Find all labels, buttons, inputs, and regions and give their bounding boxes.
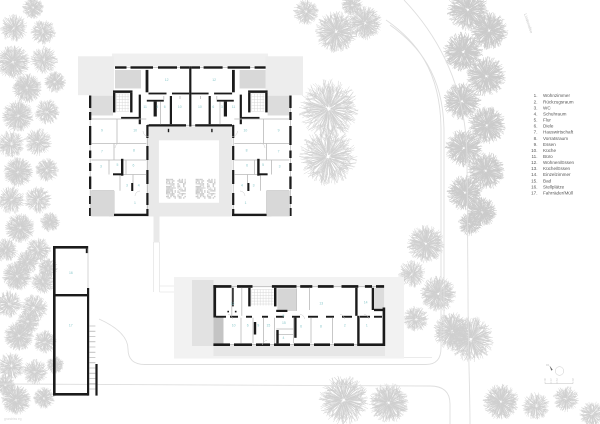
svg-text:11.: 11.: [531, 154, 537, 159]
svg-text:1: 1: [550, 377, 552, 381]
svg-text:Wohnen/Essen: Wohnen/Essen: [543, 160, 575, 165]
svg-text:10: 10: [178, 105, 182, 109]
svg-text:4: 4: [283, 336, 285, 340]
svg-text:5: 5: [283, 314, 285, 318]
svg-text:1: 1: [245, 201, 247, 205]
svg-text:Bad: Bad: [543, 178, 552, 183]
svg-text:Essen: Essen: [543, 142, 556, 147]
svg-text:12: 12: [231, 302, 235, 306]
svg-text:Fahrräder/Müll: Fahrräder/Müll: [543, 190, 573, 195]
svg-text:9: 9: [257, 324, 259, 328]
svg-text:17.: 17.: [531, 190, 537, 195]
svg-text:3: 3: [126, 183, 128, 187]
svg-text:Diele: Diele: [543, 124, 554, 129]
svg-text:3: 3: [221, 105, 223, 109]
svg-text:2.: 2.: [534, 99, 538, 104]
svg-text:Küche: Küche: [543, 148, 556, 153]
svg-text:17: 17: [69, 323, 73, 327]
svg-text:Stellplätze: Stellplätze: [543, 184, 565, 189]
svg-text:Rückzugsraum: Rückzugsraum: [543, 99, 574, 104]
svg-text:10.: 10.: [531, 148, 537, 153]
svg-text:N: N: [547, 363, 549, 367]
svg-text:0: 0: [544, 377, 546, 381]
svg-text:11: 11: [143, 105, 147, 109]
svg-text:10: 10: [244, 129, 248, 133]
svg-text:6: 6: [300, 324, 302, 328]
svg-text:Flur: Flur: [543, 118, 551, 123]
svg-text:13: 13: [319, 301, 323, 305]
svg-text:1: 1: [366, 324, 368, 328]
svg-text:Schuhraum: Schuhraum: [543, 111, 567, 116]
svg-text:1: 1: [134, 201, 136, 205]
svg-text:Hauswirtschaft: Hauswirtschaft: [543, 130, 574, 135]
svg-text:16.: 16.: [531, 184, 537, 189]
svg-text:12.: 12.: [531, 160, 537, 165]
svg-text:9: 9: [278, 129, 280, 133]
svg-text:16: 16: [69, 271, 73, 275]
svg-text:8.: 8.: [534, 136, 538, 141]
svg-text:15: 15: [267, 324, 271, 328]
svg-text:Vorratsraum: Vorratsraum: [543, 136, 568, 141]
svg-text:3: 3: [279, 165, 281, 169]
svg-text:3: 3: [100, 165, 102, 169]
svg-text:4: 4: [138, 183, 140, 187]
svg-text:11: 11: [232, 105, 236, 109]
svg-text:7.: 7.: [534, 130, 538, 135]
svg-text:8: 8: [133, 148, 135, 152]
svg-text:4.: 4.: [534, 111, 538, 116]
svg-text:3.: 3.: [534, 105, 538, 110]
svg-text:15.: 15.: [531, 178, 537, 183]
svg-text:8: 8: [246, 148, 248, 152]
svg-text:6: 6: [246, 163, 248, 167]
svg-text:8: 8: [320, 324, 322, 328]
svg-text:WC: WC: [543, 105, 551, 110]
svg-text:14.: 14.: [531, 172, 537, 177]
svg-text:5.: 5.: [534, 118, 538, 123]
svg-text:3: 3: [156, 105, 158, 109]
svg-text:grundriss eg: grundriss eg: [4, 417, 22, 421]
svg-text:Lindenallee: Lindenallee: [523, 13, 534, 35]
svg-text:Küche/Essen: Küche/Essen: [543, 166, 571, 171]
svg-text:14: 14: [364, 301, 368, 305]
svg-text:Wohnzimmer: Wohnzimmer: [543, 93, 570, 98]
svg-text:Büro: Büro: [543, 154, 553, 159]
svg-text:5: 5: [262, 163, 264, 167]
svg-text:10: 10: [198, 105, 202, 109]
svg-text:2: 2: [556, 377, 558, 381]
svg-text:9: 9: [101, 129, 103, 133]
svg-text:1.: 1.: [534, 93, 538, 98]
svg-text:Einzelzimmer: Einzelzimmer: [543, 172, 571, 177]
svg-text:15: 15: [282, 321, 286, 325]
svg-text:9.: 9.: [534, 142, 538, 147]
svg-text:6: 6: [247, 324, 249, 328]
svg-text:5: 5: [117, 163, 119, 167]
svg-text:7: 7: [101, 149, 103, 153]
svg-text:13.: 13.: [531, 166, 537, 171]
svg-text:6: 6: [133, 163, 135, 167]
svg-text:12: 12: [165, 78, 169, 82]
svg-text:5: 5: [572, 377, 574, 381]
svg-text:7: 7: [278, 149, 280, 153]
svg-text:4: 4: [241, 183, 243, 187]
svg-text:3: 3: [253, 183, 255, 187]
svg-text:2: 2: [344, 324, 346, 328]
svg-text:6: 6: [212, 105, 214, 109]
svg-text:10: 10: [232, 324, 236, 328]
svg-text:6.: 6.: [534, 124, 538, 129]
svg-text:10: 10: [133, 129, 137, 133]
svg-text:6: 6: [164, 105, 166, 109]
svg-text:12: 12: [212, 78, 216, 82]
